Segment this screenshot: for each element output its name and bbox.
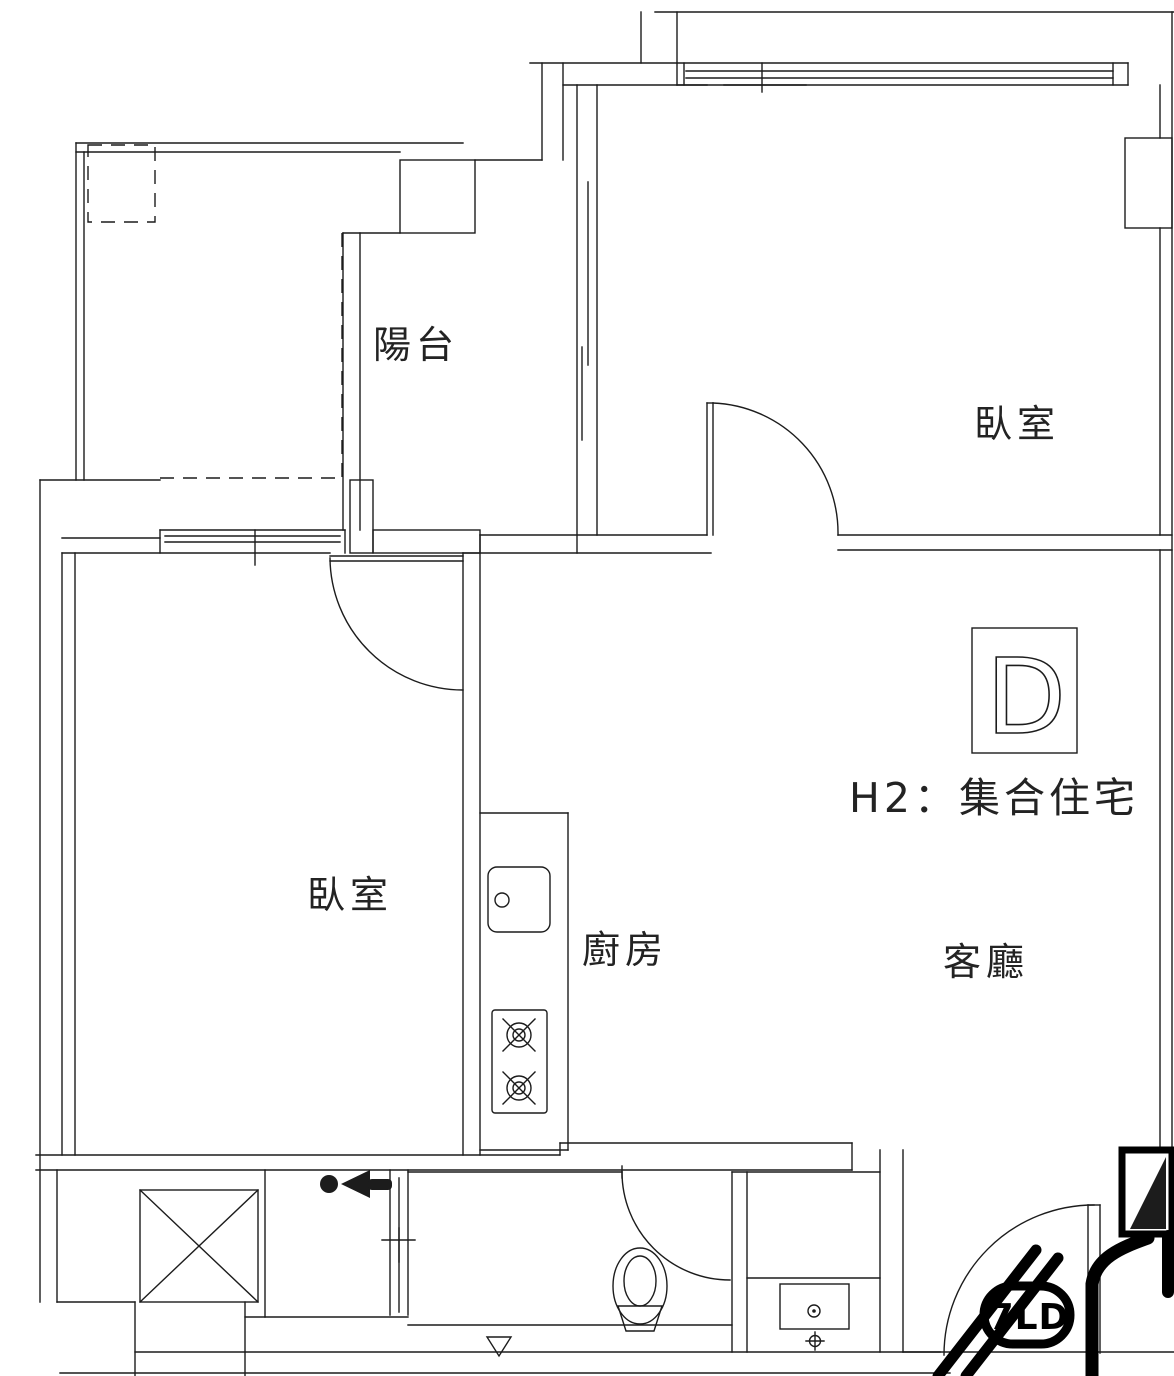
eaves-dashed-lines (88, 145, 342, 478)
door-bathroom (622, 1166, 730, 1280)
scribble-text: 7LD (989, 1297, 1070, 1338)
entry-person-arrow-icon (320, 1170, 392, 1198)
floor-drain-icon (806, 1332, 824, 1350)
kitchen-sink (488, 867, 550, 932)
window-bedroom-left (160, 530, 345, 565)
unit-type-label: H2：集合住宅 (849, 774, 1139, 822)
vanity-basin-icon (780, 1284, 849, 1329)
door-bedroom-left (330, 556, 463, 690)
room-labels: 陽台 臥室 臥室 廚房 客廳 (307, 323, 1060, 984)
level-triangle-icon (487, 1337, 511, 1356)
two-burner-stove-icon (492, 1010, 547, 1113)
floor-plan-canvas: 陽台 臥室 臥室 廚房 客廳 D H2：集合住宅 7LD (0, 0, 1174, 1376)
unit-badge-letter: D (986, 636, 1066, 758)
label-kitchen: 廚房 (582, 928, 668, 972)
label-bedroom-left: 臥室 (307, 873, 393, 917)
label-living-room: 客廳 (943, 940, 1029, 984)
window-bedroom-top (677, 63, 1128, 92)
label-bedroom-top: 臥室 (974, 402, 1060, 446)
marker-annotation: 7LD (938, 1150, 1172, 1376)
door-bedroom-top (707, 403, 838, 535)
label-balcony: 陽台 (373, 323, 459, 367)
sliding-door-bathroom (382, 1170, 415, 1315)
toilet-icon (613, 1248, 667, 1331)
shaft-x-box (140, 1190, 258, 1302)
unit-badge: D H2：集合住宅 (849, 628, 1139, 822)
